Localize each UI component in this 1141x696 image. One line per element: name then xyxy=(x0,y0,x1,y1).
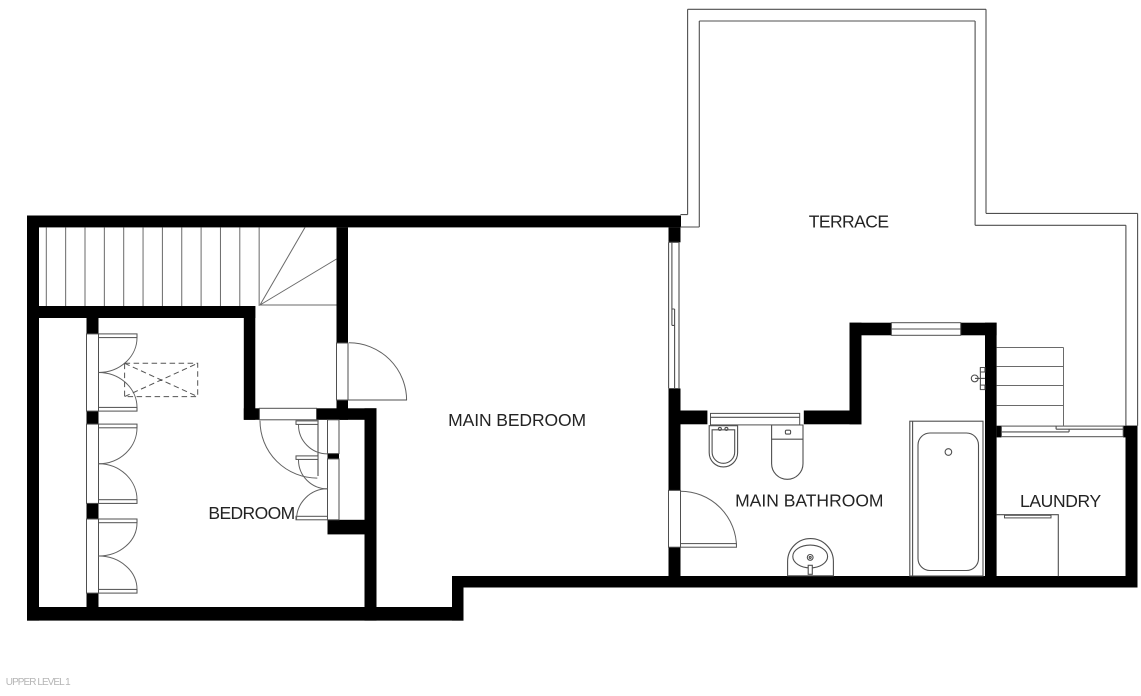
svg-text:TERRACE: TERRACE xyxy=(809,212,889,232)
svg-text:MAIN BATHROOM: MAIN BATHROOM xyxy=(735,491,883,511)
svg-text:MAIN BEDROOM: MAIN BEDROOM xyxy=(448,410,586,430)
svg-text:UPPER LEVEL 1: UPPER LEVEL 1 xyxy=(6,677,71,688)
svg-text:BEDROOM: BEDROOM xyxy=(208,503,294,523)
svg-text:LAUNDRY: LAUNDRY xyxy=(1020,491,1102,511)
